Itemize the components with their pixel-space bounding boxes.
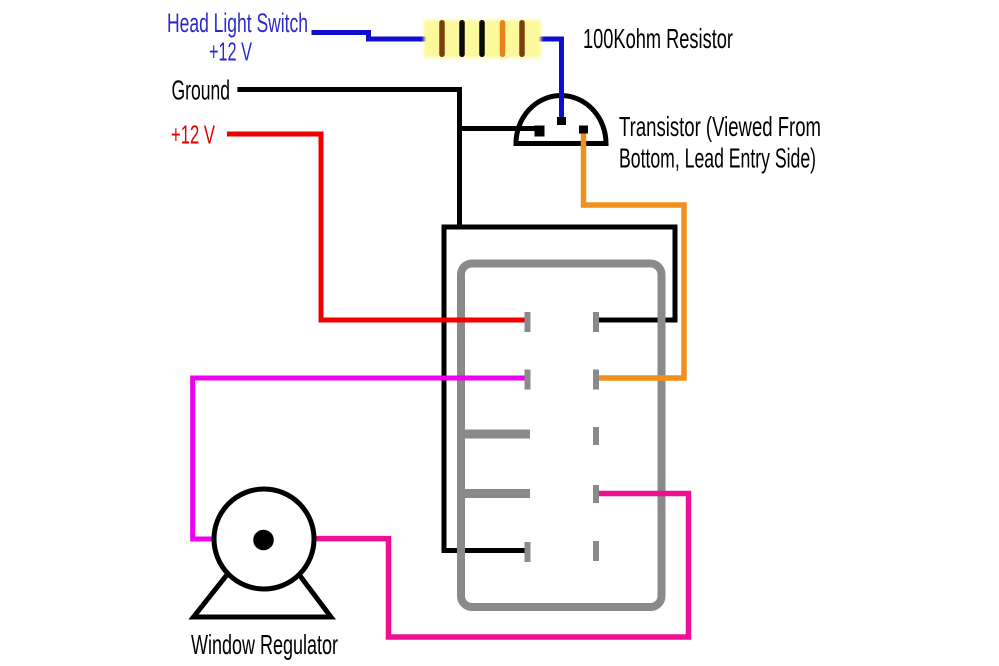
svg-text:Ground: Ground <box>172 75 231 106</box>
svg-text:Window Regulator: Window Regulator <box>191 629 338 660</box>
svg-text:+12 V: +12 V <box>171 120 215 150</box>
svg-text:Transistor (Viewed From: Transistor (Viewed From <box>619 111 821 142</box>
svg-text:+12 V: +12 V <box>209 37 252 67</box>
svg-text:Bottom, Lead Entry Side): Bottom, Lead Entry Side) <box>619 143 816 174</box>
svg-text:Head Light Switch: Head Light Switch <box>167 8 308 38</box>
svg-text:100Kohm Resistor: 100Kohm Resistor <box>583 23 733 54</box>
